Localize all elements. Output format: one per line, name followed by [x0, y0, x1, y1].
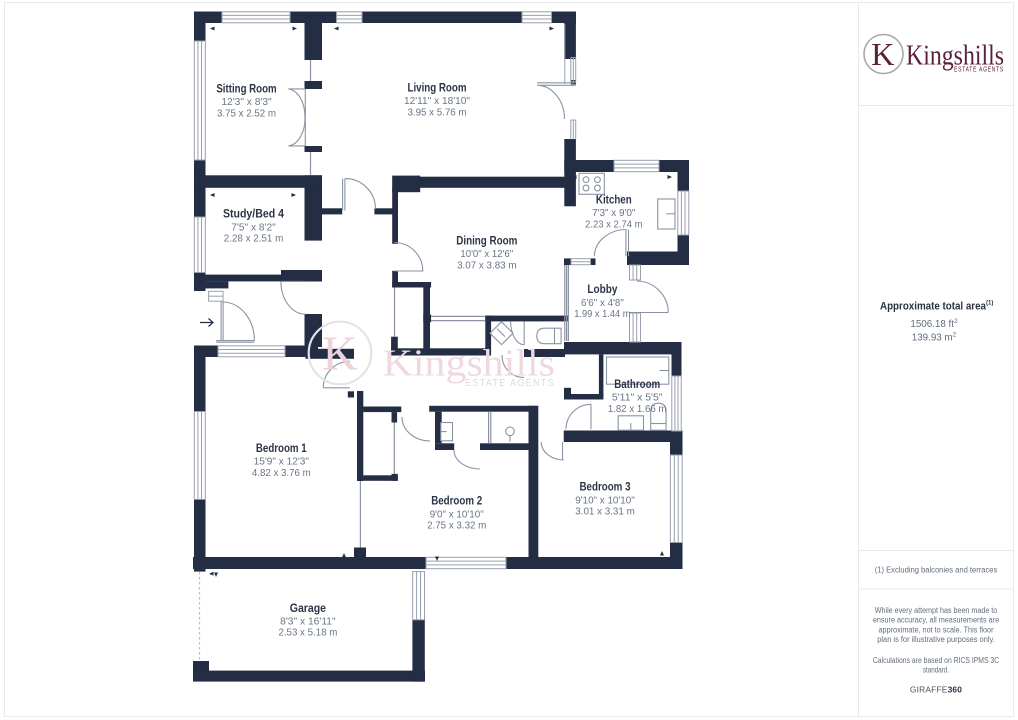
svg-text:2.28 x 2.51 m: 2.28 x 2.51 m [224, 234, 284, 245]
svg-text:1506.18 ft2: 1506.18 ft2 [910, 318, 958, 330]
svg-text:10'0" x 12'6": 10'0" x 12'6" [460, 249, 513, 260]
svg-text:2.53 x 5.18 m: 2.53 x 5.18 m [278, 628, 337, 639]
svg-text:3.75 x 2.52 m: 3.75 x 2.52 m [217, 108, 276, 119]
svg-text:(1): (1) [986, 301, 993, 307]
svg-text:4.82 x 3.76 m: 4.82 x 3.76 m [252, 468, 311, 479]
svg-text:Living Room: Living Room [408, 81, 467, 94]
svg-text:Calculations are based on RICS: Calculations are based on RICS IPMS 3C [873, 656, 1000, 665]
svg-text:Lobby: Lobby [587, 283, 617, 296]
svg-text:plan is for illustrative purpo: plan is for illustrative purposes only. [877, 635, 995, 644]
svg-text:Kitchen: Kitchen [596, 193, 632, 206]
svg-text:7'5" x 8'2": 7'5" x 8'2" [231, 222, 276, 233]
svg-text:139.93 m2: 139.93 m2 [912, 332, 957, 344]
svg-text:K: K [322, 326, 357, 381]
svg-text:K: K [871, 36, 894, 72]
svg-text:ESTATE AGENTS: ESTATE AGENTS [954, 66, 1004, 73]
svg-text:6'6" x 4'8": 6'6" x 4'8" [581, 298, 624, 309]
svg-text:ensure accuracy, all measureme: ensure accuracy, all measurements are [873, 616, 999, 625]
svg-text:9'0" x 10'10": 9'0" x 10'10" [430, 509, 484, 520]
svg-text:9'10" x 10'10": 9'10" x 10'10" [575, 495, 635, 506]
svg-text:Bedroom 3: Bedroom 3 [580, 481, 631, 494]
svg-text:GIRAFFE360: GIRAFFE360 [910, 685, 962, 695]
svg-text:Bathroom: Bathroom [614, 378, 660, 391]
svg-text:3.07 x 3.83 m: 3.07 x 3.83 m [457, 260, 516, 271]
svg-text:Sitting Room: Sitting Room [216, 82, 276, 95]
svg-text:2.23 x 2.74 m: 2.23 x 2.74 m [585, 219, 643, 230]
svg-text:(1) Excluding balconies and te: (1) Excluding balconies and terraces [875, 565, 998, 574]
svg-text:ESTATE AGENTS: ESTATE AGENTS [465, 377, 555, 389]
svg-text:8'3" x 16'11": 8'3" x 16'11" [280, 616, 336, 627]
svg-text:7'3" x 9'0": 7'3" x 9'0" [592, 208, 636, 219]
svg-text:standard.: standard. [923, 666, 949, 675]
svg-text:3.01 x 3.31 m: 3.01 x 3.31 m [575, 507, 635, 518]
svg-text:Approximate total area: Approximate total area [880, 300, 986, 312]
svg-text:Study/Bed 4: Study/Bed 4 [223, 208, 285, 221]
svg-text:15'9" x 12'3": 15'9" x 12'3" [254, 457, 310, 468]
svg-text:12'11" x 18'10": 12'11" x 18'10" [404, 96, 470, 107]
svg-text:approximate, not to scale. Thi: approximate, not to scale. This floor [879, 625, 994, 634]
svg-text:1.99 x 1.44 m: 1.99 x 1.44 m [574, 309, 630, 320]
svg-text:12'3" x 8'3": 12'3" x 8'3" [221, 97, 272, 108]
svg-text:1.82 x 1.66 m: 1.82 x 1.66 m [608, 404, 667, 415]
svg-text:2.75 x 3.32 m: 2.75 x 3.32 m [427, 521, 486, 532]
svg-text:Bedroom 1: Bedroom 1 [256, 442, 307, 455]
svg-text:5'11" x 5'5": 5'11" x 5'5" [612, 393, 663, 404]
svg-text:3.95 x 5.76 m: 3.95 x 5.76 m [408, 107, 467, 118]
svg-text:Dining Room: Dining Room [456, 234, 517, 247]
svg-text:While every attempt has been m: While every attempt has been made to [875, 606, 998, 615]
svg-text:Bedroom 2: Bedroom 2 [431, 495, 482, 508]
svg-text:Garage: Garage [290, 602, 327, 615]
